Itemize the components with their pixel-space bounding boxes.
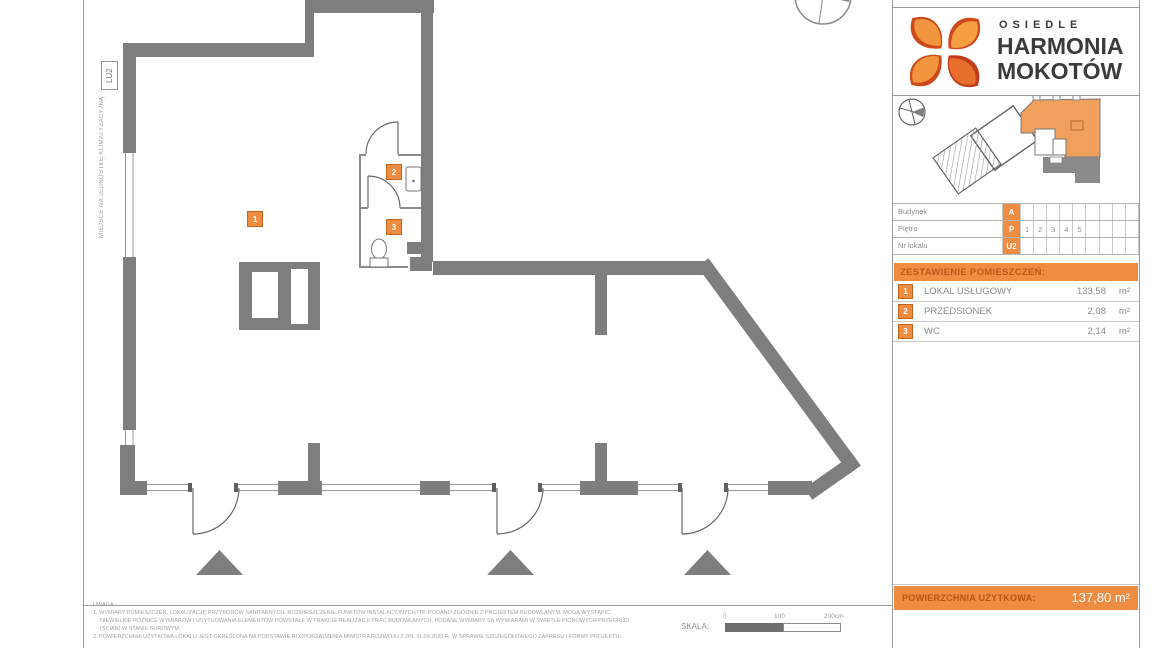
usable-area-label: POWIERZCHNIA UŻYTKOWA:	[902, 593, 1036, 603]
panel-border-left	[892, 0, 893, 648]
rooms-list-header: ZESTAWIENIE POMIESZCZEŃ:	[894, 263, 1138, 281]
site-buildings	[933, 95, 1100, 194]
note-line: (ŚCIAN) W STANIE SUROWYM.	[100, 625, 693, 633]
row-label: Nr lokalu	[893, 238, 1003, 254]
room-area-unit: m²	[1119, 326, 1130, 337]
room-area-unit: m²	[1119, 306, 1130, 317]
site-compass-icon	[899, 99, 925, 125]
row-code: U2	[1003, 238, 1021, 254]
room-number-chip: 1	[898, 284, 913, 299]
site-plan-map	[893, 95, 1139, 203]
room-row-2: 2 PRZEDSIONEK 2,08 m²	[894, 301, 1138, 321]
toilet-tank	[370, 258, 388, 267]
room-name: LOKAL USŁUGOWY	[924, 286, 1012, 297]
row-code: A	[1003, 204, 1021, 220]
room-marker-3: 3	[386, 219, 402, 235]
room-name: PRZEDSIONEK	[924, 306, 992, 317]
windows-group	[126, 153, 769, 491]
note-line: 1. WYMIARY POMIESZCZEŃ, LOKALIZACJĘ PRZY…	[93, 609, 693, 617]
room-marker-1: 1	[247, 211, 263, 227]
toilet-bowl	[372, 239, 387, 259]
scale-label: SKALA:	[681, 622, 709, 631]
room-row-3: 3 WC 2,14 m²	[894, 321, 1138, 341]
room-area: 2,08	[1088, 306, 1107, 317]
table-row-budynek: Budynek A	[893, 204, 1139, 221]
footer-top-line	[893, 584, 1139, 585]
room-area: 2,14	[1088, 326, 1107, 337]
table-row-nr-lokalu: Nr lokalu U2	[893, 238, 1139, 255]
room-name: WC	[924, 326, 940, 337]
site-plan	[893, 95, 1139, 203]
unit-tag: LU2	[101, 61, 118, 90]
row-code: P	[1003, 221, 1021, 237]
north-arrow-icon	[795, 0, 852, 24]
logo-flower-icon	[901, 11, 989, 93]
walls-group	[120, 0, 851, 495]
scale-bar: SKALA: 0 100 200cm	[681, 613, 861, 639]
logo: OSIEDLE HARMONIA MOKOTÓW	[893, 7, 1139, 95]
room-row-divider	[893, 301, 1139, 302]
scale-tick-0: 0	[723, 613, 727, 620]
ac-unit-note: MIEJSCE NA JEDNOSTKĘ KLIMATYZACYJNĄ	[99, 90, 111, 238]
floor-plan-sheet: MIEJSCE NA JEDNOSTKĘ KLIMATYZACYJNĄ LU2 …	[0, 0, 1170, 648]
row-label: Piętro	[893, 221, 1003, 237]
scale-tick-100: 100	[774, 613, 785, 620]
sheet-border-right	[1139, 0, 1140, 648]
logo-line-mokotow: MOKOTÓW	[997, 59, 1124, 84]
usable-area-bar: POWIERZCHNIA UŻYTKOWA: 137,80 m²	[894, 586, 1138, 610]
logo-line-osiedle: OSIEDLE	[999, 19, 1124, 31]
shaft-block	[239, 262, 320, 330]
room-area-unit: m²	[1119, 286, 1130, 297]
scale-tick-200: 200cm	[824, 613, 844, 620]
usable-area-value: 137,80 m²	[1071, 590, 1130, 605]
room-marker-2: 2	[386, 164, 402, 180]
table-row-pietro: Piętro P 1 2 3 4 5	[893, 221, 1139, 238]
sheet-border-left	[83, 0, 84, 648]
building-info-table: Budynek A Piętro P 1 2 3 4 5 Nr lokalu U…	[893, 203, 1139, 253]
logo-line-harmonia: HARMONIA	[997, 34, 1124, 59]
room-area: 133,58	[1077, 286, 1106, 297]
room-row-divider	[893, 341, 1139, 342]
notes-block: UWAGA: 1. WYMIARY POMIESZCZEŃ, LOKALIZAC…	[93, 601, 693, 641]
row-label: Budynek	[893, 204, 1003, 220]
scale-segment-dark	[725, 623, 784, 632]
note-line: 2. POWIERZCHNIA UŻYTKOWA LOKALU JEST OKR…	[93, 633, 693, 641]
note-line: NIEWIELKIE RÓŻNICE WYMIARÓW I USYTUOWANI…	[100, 617, 693, 625]
panel-top-line	[893, 7, 1140, 8]
entrance-triangles	[196, 550, 731, 575]
sink	[406, 167, 421, 191]
room-number-chip: 2	[898, 304, 913, 319]
scale-segment-light	[783, 623, 841, 632]
notes-divider	[83, 605, 893, 606]
floor-plan-drawing	[83, 0, 893, 605]
room-number-chip: 3	[898, 324, 913, 339]
info-panel: OSIEDLE HARMONIA MOKOTÓW	[893, 0, 1139, 648]
room-row-divider	[893, 321, 1139, 322]
room-row-1: 1 LOKAL USŁUGOWY 133,58 m²	[894, 281, 1138, 301]
logo-cell-line	[893, 95, 1140, 96]
